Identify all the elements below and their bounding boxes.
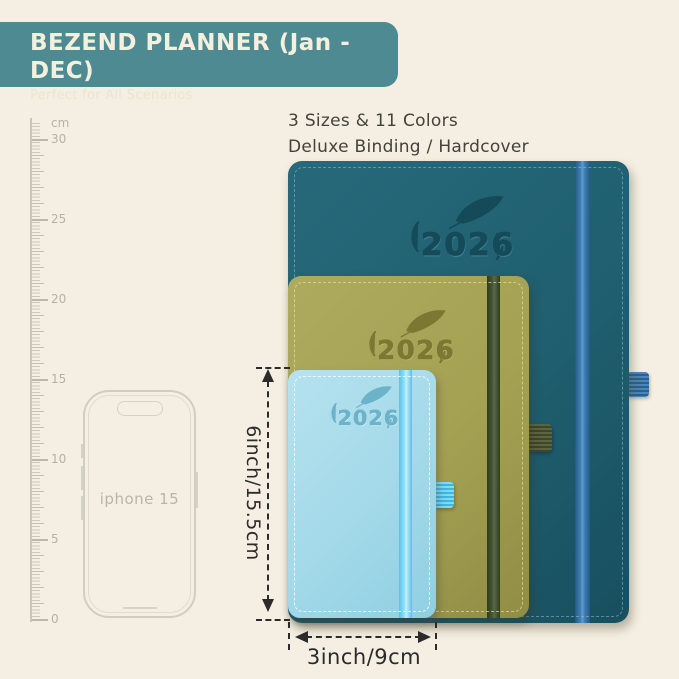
ruler-major-ticks [32,139,48,621]
year-emblem: 2026 2026 [400,191,516,262]
side-button [196,472,198,508]
pen-loop [627,372,649,397]
year-emblem: 2026 2026 [360,306,456,365]
year-text: 2026 [338,406,400,430]
iphone-label: iphone 15 [85,490,194,508]
arrow-up-icon [262,369,274,382]
ruler-label-0: 0 [51,612,59,626]
height-dimension-arrow [267,381,269,601]
ruler-label-25: 25 [51,212,66,226]
feather-icon [407,310,445,332]
ruler-label-20: 20 [51,292,66,306]
ruler-unit-label: cm [51,116,69,130]
iphone-outline: iphone 15 [83,390,196,618]
width-dimension-label: 3inch/9cm [300,645,428,669]
year-emblem: 2026 2026 [324,383,400,430]
feature-text: 3 Sizes & 11 Colors Deluxe Binding / Har… [288,108,529,161]
banner-title: BEZEND PLANNER (Jan - DEC) [30,30,398,85]
banner-subtitle: Perfect for All Scenarios [30,88,398,103]
feature-line-binding: Deluxe Binding / Hardcover [288,134,529,160]
year-text: 2026 [377,336,455,365]
ruler-label-10: 10 [51,452,66,466]
arrow-left-icon [295,631,308,643]
feather-icon [456,196,502,223]
feature-line-sizes: 3 Sizes & 11 Colors [288,108,529,134]
planner-small: 2026 2026 [288,370,436,618]
pen-loop [434,482,454,508]
extension-line [435,622,437,650]
home-indicator [123,607,157,609]
dynamic-island [117,401,163,416]
arrow-down-icon [262,599,274,612]
year-text: 2026 [421,227,515,262]
width-dimension-arrow [306,636,421,638]
elastic-band [487,276,500,618]
side-button [81,496,83,520]
height-dimension-label: 6inch/15.5cm [242,425,264,561]
feather-icon [361,387,391,405]
product-size-infographic: BEZEND PLANNER (Jan - DEC) Perfect for A… [0,0,679,679]
ruler-label-5: 5 [51,532,59,546]
side-button [81,466,83,490]
ruler-label-15: 15 [51,372,66,386]
side-button [81,444,83,458]
pen-loop [527,424,552,452]
elastic-band [575,161,590,623]
extension-line [256,619,290,621]
extension-line [288,622,290,650]
brand-banner: BEZEND PLANNER (Jan - DEC) Perfect for A… [0,22,398,87]
ruler-label-30: 30 [51,132,66,146]
elastic-band [399,370,412,618]
arrow-right-icon [418,631,431,643]
